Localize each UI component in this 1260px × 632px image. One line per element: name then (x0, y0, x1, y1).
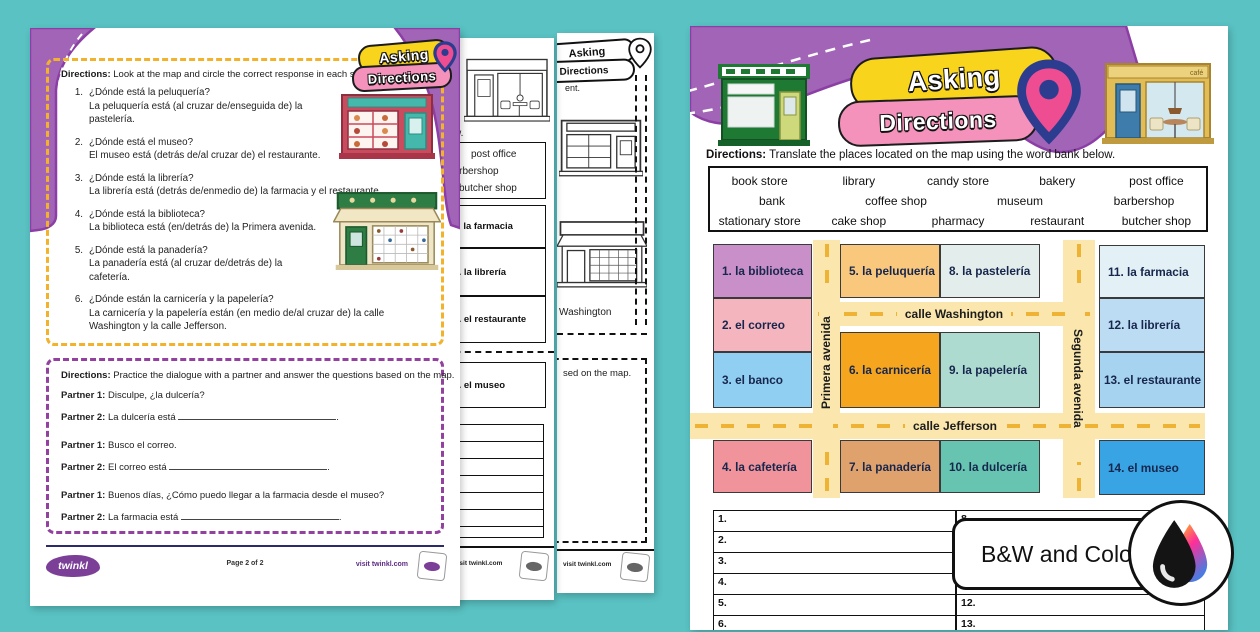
map-pin-icon (1012, 56, 1086, 148)
map-cell-panaderia: 7. la panadería (840, 440, 940, 493)
answer-text: La biblioteca está (en/detrás de) la Pri… (61, 221, 321, 235)
map-cell-biblioteca: 1. la biblioteca (713, 244, 812, 298)
asking-directions-logo-small: Asking Directions (352, 40, 456, 106)
answer-row: 6. (714, 616, 955, 630)
bw-map-cell-museo: 14. el museo (452, 362, 546, 408)
svg-text:café: café (1190, 70, 1203, 77)
bw-and-color-badge: B&W and Color (952, 512, 1252, 632)
word-bank-item: post office (1107, 174, 1206, 188)
speaker-label: Partner 2: (61, 512, 105, 523)
town-map: calle Washington calle Jefferson Primera… (690, 240, 1228, 498)
street-label-segunda-avenida: Segunda avenida (1071, 294, 1085, 462)
map-cell-dulceria: 10. la dulcería (940, 440, 1040, 493)
map-cell-papeleria: 9. la papelería (940, 332, 1040, 408)
question-number: 6. (61, 293, 89, 307)
twinkl-quality-badge-icon (417, 551, 448, 582)
map-cell-farmacia: 11. la farmacia (1099, 245, 1205, 298)
word-bank-item: restaurant (1008, 214, 1107, 228)
speaker-label: Partner 2: (61, 462, 105, 473)
answer-blank-line (169, 459, 327, 470)
dialogue-directions: Directions: Practice the dialogue with a… (61, 369, 429, 382)
word-bank-item: bank (710, 194, 834, 208)
map-cell-libreria: 12. la librería (1099, 298, 1205, 352)
ink-drop-icon (1150, 516, 1212, 590)
question-text: ¿Dónde está la peluquería? (89, 86, 210, 100)
question-number: 5. (61, 244, 89, 258)
street-label-jefferson: calle Jefferson (840, 419, 1070, 433)
answer-blank-line (181, 509, 339, 520)
question-number: 3. (61, 172, 89, 186)
speaker-label: Partner 1: (61, 440, 105, 451)
green-shop-illustration (716, 60, 812, 148)
bw-visit-link: visit twinkl.com (563, 561, 611, 568)
bw-footer-rule (557, 549, 654, 551)
word-bank-item: book store (710, 174, 809, 188)
bw-dashed-border-line (635, 75, 637, 325)
bw-dashed-border-line-2 (645, 75, 647, 325)
bw-wordbank-item: post office (452, 146, 545, 163)
question-text: ¿Dónde están la carnicería y la papelerí… (89, 293, 274, 307)
map-cell-carniceria: 6. la carnicería (840, 332, 940, 408)
answer-row: 2. (714, 532, 955, 553)
map-cell-pasteleria: 8. la pastelería (940, 244, 1040, 298)
answer-row: 4. (714, 574, 955, 595)
map-cell-peluqueria: 5. la peluquería (840, 244, 940, 298)
dialogue-line: Partner 1: Busco el correo. (61, 439, 429, 452)
answer-row: 5. (714, 595, 955, 616)
question-item: 6.¿Dónde están la carnicería y la papele… (61, 293, 429, 334)
question-text: ¿Dónde está la librería? (89, 172, 194, 186)
word-bank-row: book store library candy store bakery po… (710, 171, 1206, 191)
bw-map-cell-libreria: 12. la librería (452, 248, 546, 296)
word-bank-row: stationary store cake shop pharmacy rest… (710, 211, 1206, 231)
bw-pastry-shop-illustration (559, 113, 643, 179)
map-cell-correo: 2. el correo (713, 298, 812, 352)
question-text: ¿Dónde está la panadería? (89, 244, 208, 258)
bw-awning-shop-illustration (557, 213, 647, 295)
bw-cafe-illustration (464, 50, 550, 126)
word-bank-item: barbershop (1082, 194, 1206, 208)
word-bank-item: stationary store (710, 214, 809, 228)
word-bank-item: candy store (908, 174, 1007, 188)
question-number: 1. (61, 86, 89, 100)
bw-road-dashed-line (452, 351, 554, 353)
awning-shop-illustration (333, 191, 441, 271)
preview-page-bw-map: w. post office barbershop butcher shop 1… (452, 38, 554, 600)
footer-divider (46, 545, 444, 547)
dialogue-section: Directions: Practice the dialogue with a… (46, 358, 444, 534)
map-cell-cafeteria: 4. la cafetería (713, 440, 812, 493)
preview-page-questions: Asking Directions Directions: Look at th… (30, 28, 460, 606)
bw-visit-link: visit twinkl.com (454, 560, 502, 567)
word-bank-item: cake shop (809, 214, 908, 228)
bw-fragment-washington: Washington (559, 307, 611, 318)
word-bank-item: butcher shop (1107, 214, 1206, 228)
speaker-label: Partner 1: (61, 390, 105, 401)
map-cell-banco: 3. el banco (713, 352, 812, 408)
bw-map-cell-restaurante: 13. el restaurante (452, 296, 546, 343)
answer-row: 1. (714, 511, 955, 532)
map-cell-museo: 14. el museo (1099, 440, 1205, 495)
ink-drop-ring (1128, 500, 1234, 606)
logo-pill-directions: Directions (837, 95, 1038, 148)
bw-fragment-map-text: sed on the map. (557, 360, 645, 379)
bw-answer-table-fragment (452, 424, 544, 538)
asking-directions-logo-large: Asking Directions (838, 46, 1068, 146)
bw-dialogue-box: sed on the map. (557, 358, 647, 543)
word-bank: book store library candy store bakery po… (708, 166, 1208, 232)
word-bank-item: museum (958, 194, 1082, 208)
map-cell-restaurante: 13. el restaurante (1099, 352, 1205, 408)
twinkl-quality-badge-icon (519, 551, 550, 582)
dialogue-line: Partner 2: La farmacia está . (61, 509, 429, 524)
word-bank-item: bakery (1008, 174, 1107, 188)
street-label-washington: calle Washington (813, 307, 1095, 321)
bw-logo-directions: Directions (557, 58, 635, 84)
answer-text: La carnicería y la papelería están (en m… (61, 307, 429, 334)
directions-label: Directions: (706, 149, 766, 161)
question-text: ¿Dónde está el museo? (89, 136, 193, 150)
word-bank-item: library (809, 174, 908, 188)
map-page-directions: Directions: Translate the places located… (706, 149, 1115, 161)
dialogue-line: Partner 2: La dulcería está . (61, 409, 429, 424)
word-bank-item: coffee shop (834, 194, 958, 208)
directions-label: Directions: (61, 370, 111, 381)
dialogue-line: Partner 1: Disculpe, ¿la dulcería? (61, 389, 429, 402)
bw-footer-rule (452, 546, 554, 548)
bw-map-cell-farmacia: 11. la farmacia (452, 205, 546, 248)
bw-dashed-divider (557, 333, 647, 335)
answer-text: La peluquería está (al cruzar de/ensegui… (61, 100, 327, 127)
speaker-label: Partner 1: (61, 490, 105, 501)
question-number: 2. (61, 136, 89, 150)
bw-wordbank-item: barbershop (452, 163, 545, 180)
street-label-primera-avenida: Primera avenida (819, 284, 833, 442)
map-pin-icon (432, 40, 458, 74)
preview-page-bw-questions: Asking Directions ent. Washington sed on… (557, 33, 654, 593)
word-bank-row: bank coffee shop museum barbershop (710, 191, 1206, 211)
visit-twinkl-link: visit twinkl.com (356, 561, 408, 568)
answer-text: El museo está (detrás de/al cruzar de) e… (61, 149, 327, 163)
directions-label: Directions: (61, 69, 111, 80)
bw-wordbank-fragment: post office barbershop butcher shop (452, 142, 546, 199)
question-number: 4. (61, 208, 89, 222)
answer-text: La panadería está (al cruzar de/detrás d… (61, 257, 321, 284)
dialogue-line: Partner 2: El correo está . (61, 459, 429, 474)
question-text: ¿Dónde está la biblioteca? (89, 208, 205, 222)
bw-fragment-statement: ent. (565, 83, 580, 93)
cafe-shop-illustration: café (1102, 54, 1214, 148)
word-bank-item: pharmacy (908, 214, 1007, 228)
answer-blank-line (178, 409, 336, 420)
answer-row: 3. (714, 553, 955, 574)
dialogue-line: Partner 1: Buenos días, ¿Cómo puedo lleg… (61, 489, 429, 502)
bw-wordbank-item: butcher shop (452, 180, 545, 197)
answer-table-left: 1. 2. 3. 4. 5. 6. 7. (713, 510, 956, 630)
speaker-label: Partner 2: (61, 412, 105, 423)
bw-pin-icon (628, 37, 652, 69)
twinkl-quality-badge-icon (620, 552, 651, 583)
